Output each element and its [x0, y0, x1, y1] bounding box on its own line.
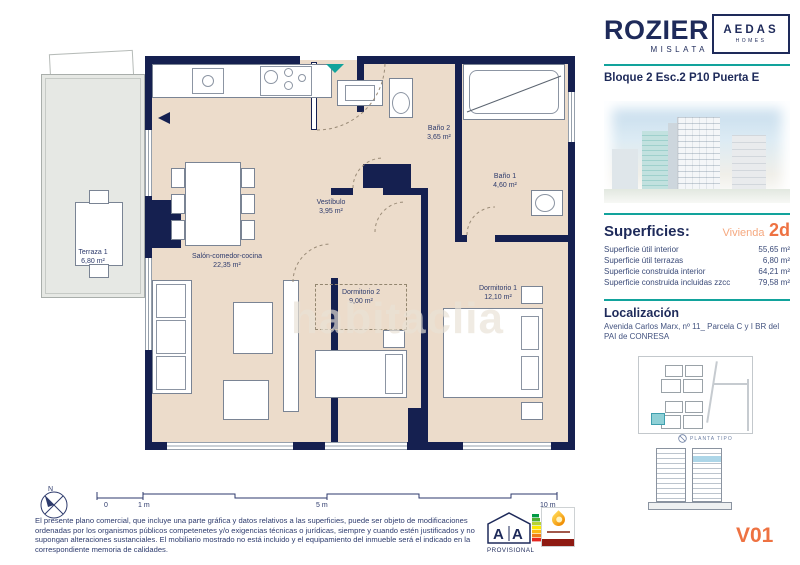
teal-divider	[604, 299, 790, 301]
room-label-vestibulo: Vestíbulo 3,95 m²	[317, 198, 346, 216]
highlighted-unit	[651, 413, 665, 425]
highlighted-floor	[693, 456, 721, 462]
superficies-table: Superficie útil interior 55,65 m² Superf…	[604, 244, 790, 288]
door-arc	[375, 202, 405, 232]
room-name: Baño 2	[427, 124, 451, 133]
room-name: Vestíbulo	[317, 198, 346, 207]
superficie-label: Superficie construida interior	[604, 266, 705, 277]
superficies-heading: Superficies:	[604, 223, 690, 240]
certification-text-line	[547, 531, 570, 533]
room-label-dorm2: Dormitorio 2 9,00 m²	[342, 288, 380, 306]
render-building	[732, 135, 766, 193]
site-block	[661, 379, 681, 393]
site-road	[706, 361, 718, 423]
site-block	[665, 401, 683, 413]
render-building	[677, 117, 720, 193]
superficie-row: Superficie construida incluidas zzcc 79,…	[604, 277, 790, 288]
room-area: 22,35 m²	[192, 261, 262, 270]
superficie-row: Superficie útil terrazas 6,80 m²	[604, 255, 790, 266]
scale-label-1m: 1 m	[138, 502, 150, 509]
superficie-row: Superficie construida interior 64,21 m²	[604, 266, 790, 277]
room-name: Baño 1	[493, 172, 517, 181]
room-name: Salón-comedor-cocina	[192, 252, 262, 261]
elevation-tower	[656, 448, 686, 502]
certification-band	[542, 539, 574, 546]
superficie-label: Superficie útil terrazas	[604, 255, 683, 266]
room-area: 6,80 m²	[78, 257, 107, 266]
shower-screen-line	[467, 76, 561, 112]
elevation-podium	[648, 502, 732, 510]
door-arc	[293, 244, 331, 282]
superficie-label: Superficie construida incluidas zzcc	[604, 277, 730, 288]
scale-bar	[92, 488, 562, 502]
door-arc	[317, 62, 385, 130]
certification-logo	[541, 507, 575, 547]
door-arc	[353, 158, 383, 188]
site-block	[683, 379, 703, 393]
flame-icon	[549, 510, 567, 528]
room-label-terraza: Terraza 1 6,80 m²	[78, 248, 107, 266]
unit-title: Bloque 2 Esc.2 P10 Puerta E	[604, 72, 759, 84]
direction-triangle-icon	[158, 202, 170, 214]
version-tag: V01	[736, 524, 773, 548]
localizacion-address: Avenida Carlos Marx, nº 11_ Parcela C y …	[604, 322, 786, 342]
direction-triangle-icon	[158, 112, 170, 124]
energy-certificate-logo: A A	[485, 510, 545, 546]
energy-letter-left: A	[493, 526, 504, 543]
room-label-salon: Salón-comedor-cocina 22,35 m²	[192, 252, 262, 270]
door-arc	[467, 207, 495, 235]
superficie-value: 79,58 m²	[758, 277, 790, 288]
superficie-value: 64,21 m²	[758, 266, 790, 277]
room-area: 4,60 m²	[493, 181, 517, 190]
render-building	[612, 149, 638, 193]
teal-divider	[604, 64, 790, 66]
site-block	[685, 365, 703, 377]
mini-compass-icon	[678, 434, 687, 443]
room-label-bano1: Baño 1 4,60 m²	[493, 172, 517, 190]
site-block	[683, 415, 703, 429]
vivienda-value: 2d	[769, 220, 790, 240]
superficie-value: 55,65 m²	[758, 244, 790, 255]
room-name: Dormitorio 2	[342, 288, 380, 297]
superficie-value: 6,80 m²	[763, 255, 790, 266]
site-plan-diagram	[638, 356, 753, 434]
site-boundary	[747, 379, 749, 431]
brand-subname: MISLATA	[604, 45, 708, 54]
room-name: Dormitorio 1	[479, 284, 517, 293]
room-label-dorm1: Dormitorio 1 12,10 m²	[479, 284, 517, 302]
teal-divider	[604, 213, 790, 215]
superficies-header: Superficies: Vivienda 2d	[604, 220, 790, 241]
site-road	[713, 383, 749, 385]
brand-name: ROZIER	[604, 16, 708, 44]
site-plan-caption: PLANTA TIPO	[678, 434, 733, 443]
scale-label-0: 0	[104, 502, 108, 509]
building-render-image	[604, 101, 790, 203]
vivienda-tag: Vivienda 2d	[723, 220, 790, 241]
aedas-homes-logo: AEDAS HOMES	[712, 14, 790, 54]
aedas-logo-text: AEDAS	[723, 24, 778, 36]
scale-label-5m: 5 m	[316, 502, 328, 509]
site-plan-caption-text: PLANTA TIPO	[690, 436, 733, 442]
site-block	[665, 365, 683, 377]
floorplan-sheet: Terraza 1 6,80 m² Salón-comedor-cocina 2…	[0, 0, 800, 565]
room-name: Terraza 1	[78, 248, 107, 257]
door-swing-overlay	[35, 52, 575, 454]
superficie-label: Superficie útil interior	[604, 244, 679, 255]
flame-inner	[555, 515, 563, 523]
site-block	[685, 401, 703, 413]
brand-logo: ROZIER MISLATA	[604, 16, 708, 54]
floor-plan: Terraza 1 6,80 m² Salón-comedor-cocina 2…	[35, 52, 575, 454]
render-ground	[604, 189, 790, 203]
render-building	[668, 123, 677, 193]
vivienda-label: Vivienda	[723, 227, 765, 239]
room-area: 12,10 m²	[479, 293, 517, 302]
room-area: 9,00 m²	[342, 297, 380, 306]
energy-status-label: PROVISIONAL	[487, 547, 534, 554]
localizacion-heading: Localización	[604, 306, 679, 320]
homes-logo-text: HOMES	[736, 38, 767, 44]
room-area: 3,95 m²	[317, 207, 346, 216]
superficie-row: Superficie útil interior 55,65 m²	[604, 244, 790, 255]
elevation-diagram	[646, 446, 738, 512]
room-area: 3,65 m²	[427, 133, 451, 142]
room-label-bano2: Baño 2 3,65 m²	[427, 124, 451, 142]
entrance-marker-icon	[326, 64, 344, 73]
energy-letter-right: A	[512, 526, 523, 543]
disclaimer-text: El presente plano comercial, que incluye…	[35, 516, 503, 554]
